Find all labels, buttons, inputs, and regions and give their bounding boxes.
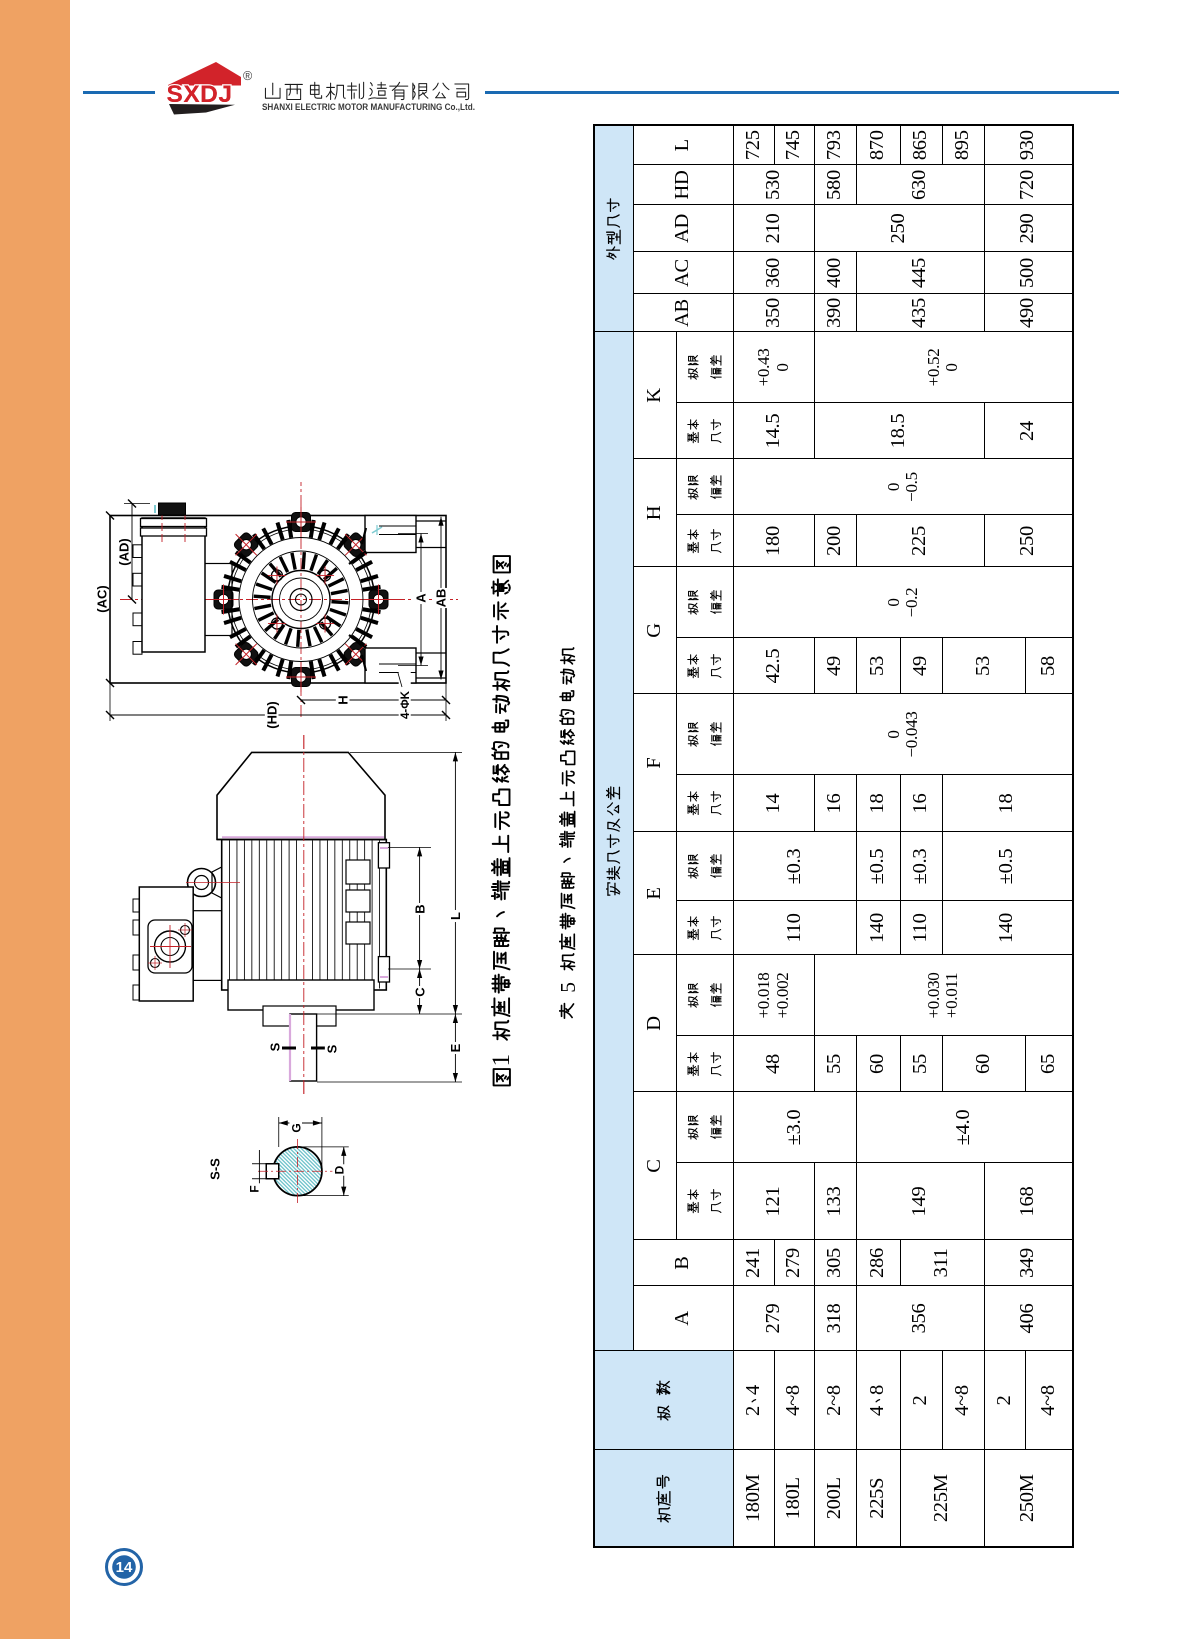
svg-text:(HD): (HD) (265, 701, 280, 728)
svg-text:(AC): (AC) (95, 585, 110, 612)
svg-text:H: H (336, 695, 351, 704)
svg-text:L: L (448, 912, 463, 920)
svg-text:S-S: S-S (208, 1158, 223, 1180)
svg-text:D: D (332, 1165, 346, 1174)
svg-text:(AD): (AD) (117, 538, 132, 565)
svg-text:A: A (414, 593, 429, 603)
svg-text:F: F (247, 1185, 261, 1192)
svg-text:S: S (325, 1044, 340, 1053)
svg-text:B: B (412, 904, 427, 913)
svg-text:4-ΦK: 4-ΦK (400, 690, 412, 719)
svg-text:AB: AB (434, 589, 449, 608)
svg-text:G: G (289, 1123, 303, 1132)
svg-text:E: E (448, 1043, 463, 1052)
svg-text:C: C (412, 987, 427, 997)
svg-text:S: S (268, 1042, 283, 1051)
